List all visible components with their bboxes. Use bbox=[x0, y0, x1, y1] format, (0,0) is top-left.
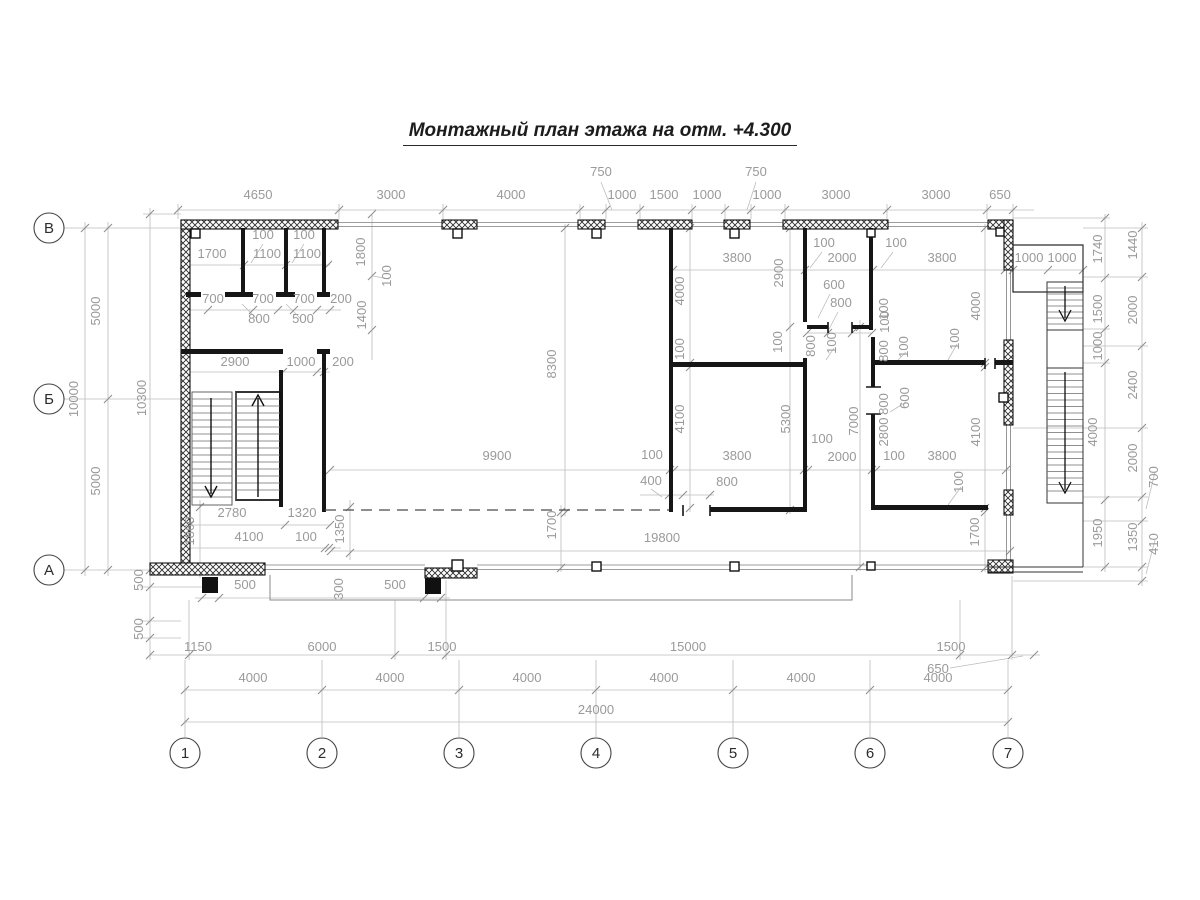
dim-label: 100 bbox=[252, 227, 274, 242]
drawing-title: Монтажный план этажа на отм. +4.300 bbox=[403, 120, 798, 146]
column-mark bbox=[730, 229, 739, 238]
dim-label: 1400 bbox=[354, 301, 369, 330]
interior-wall bbox=[995, 360, 1013, 365]
dim-label: 15000 bbox=[670, 639, 706, 654]
interior-wall bbox=[284, 228, 288, 292]
exterior-wall bbox=[150, 563, 265, 575]
dim-label: 800 bbox=[876, 340, 891, 362]
dim-label: 500 bbox=[234, 577, 256, 592]
column-mark bbox=[996, 228, 1004, 236]
dim-label: 3800 bbox=[723, 250, 752, 265]
stair-arrow-up bbox=[252, 395, 264, 497]
column-mark bbox=[592, 562, 601, 571]
axis-label: В bbox=[44, 220, 54, 237]
stair-landing bbox=[1047, 330, 1083, 368]
dim-label: 4000 bbox=[968, 292, 983, 321]
interior-wall bbox=[803, 228, 807, 322]
dim-label: 500 bbox=[131, 569, 146, 591]
column-mark bbox=[191, 229, 200, 238]
dim-label: 300 bbox=[331, 578, 346, 600]
dim-label: 5300 bbox=[778, 405, 793, 434]
axis-label: 7 bbox=[1004, 745, 1012, 762]
column-mark bbox=[999, 393, 1008, 402]
dim-label: 1700 bbox=[198, 246, 227, 261]
interior-wall bbox=[322, 354, 326, 512]
dim-label: 2000 bbox=[1125, 296, 1140, 325]
dim-label: 100 bbox=[641, 447, 663, 462]
interior-wall bbox=[241, 228, 245, 292]
dim-label: 100 bbox=[885, 235, 907, 250]
dim-label: 3000 bbox=[377, 187, 406, 202]
dim-label: 500 bbox=[292, 311, 314, 326]
dim-label: 2000 bbox=[828, 449, 857, 464]
interior-wall bbox=[322, 228, 326, 293]
dim-label: 650 bbox=[989, 187, 1011, 202]
dim-label: 4000 bbox=[1085, 418, 1100, 447]
dim-label: 1000 bbox=[693, 187, 722, 202]
interior-wall bbox=[875, 360, 985, 365]
interior-wall bbox=[873, 505, 988, 510]
dim-label: 100 bbox=[883, 448, 905, 463]
dim-label: 100 bbox=[824, 332, 839, 354]
dim-label: 100 bbox=[295, 529, 317, 544]
interior-wall bbox=[871, 337, 875, 387]
dimension-text-layer: 4650300040007501000150010007501000300030… bbox=[66, 164, 1161, 717]
dim-label: 4650 bbox=[244, 187, 273, 202]
exterior-wall bbox=[724, 220, 750, 229]
interior-wall bbox=[710, 507, 805, 512]
dim-label: 100 bbox=[672, 338, 687, 360]
dim-label: 9900 bbox=[483, 448, 512, 463]
dim-label: 4000 bbox=[672, 277, 687, 306]
dim-label: 1740 bbox=[1090, 235, 1105, 264]
dim-label: 4100 bbox=[672, 405, 687, 434]
column-filled bbox=[425, 578, 441, 594]
stair-arrow-down bbox=[1059, 286, 1071, 321]
column-mark bbox=[453, 229, 462, 238]
exterior-wall bbox=[783, 220, 888, 229]
dim-label: 4100 bbox=[968, 418, 983, 447]
exterior-wall bbox=[638, 220, 692, 229]
dim-label: 700 bbox=[202, 291, 224, 306]
exterior-wall bbox=[442, 220, 477, 229]
axis-label: 5 bbox=[729, 745, 737, 762]
dim-label: 1700 bbox=[967, 518, 982, 547]
dim-label: 2780 bbox=[218, 505, 247, 520]
interior-wall bbox=[669, 228, 673, 512]
column-mark bbox=[867, 562, 875, 570]
dim-label: 1860 bbox=[182, 517, 197, 546]
dim-label: 1320 bbox=[288, 505, 317, 520]
dim-label: 500 bbox=[384, 577, 406, 592]
dim-label: 3800 bbox=[723, 448, 752, 463]
dim-label: 6000 bbox=[308, 639, 337, 654]
dimension-lines-layer bbox=[64, 182, 1155, 737]
dim-label: 2400 bbox=[1125, 371, 1140, 400]
dim-label: 750 bbox=[590, 164, 612, 179]
dim-label: 400 bbox=[640, 473, 662, 488]
canopy-outline bbox=[270, 575, 852, 600]
dim-label: 10000 bbox=[66, 381, 81, 417]
dim-label: 1500 bbox=[428, 639, 457, 654]
dim-label: 4000 bbox=[497, 187, 526, 202]
exterior-wall bbox=[578, 220, 605, 229]
dim-label: 2000 bbox=[828, 250, 857, 265]
dim-ticks bbox=[81, 206, 1146, 726]
dim-label: 2900 bbox=[771, 259, 786, 288]
dim-label: 200 bbox=[332, 354, 354, 369]
dim-label: 4000 bbox=[924, 670, 953, 685]
column-filled bbox=[202, 577, 218, 593]
dim-label: 1000 bbox=[1015, 250, 1044, 265]
dim-label: 700 bbox=[293, 291, 315, 306]
dim-label: 1000 bbox=[753, 187, 782, 202]
dim-label: 800 bbox=[248, 311, 270, 326]
title-wrap: Монтажный план этажа на отм. +4.300 bbox=[0, 120, 1200, 146]
dim-label: 4000 bbox=[787, 670, 816, 685]
dim-label: 2800 bbox=[876, 418, 891, 447]
dim-lines bbox=[64, 182, 1155, 737]
dim-label: 1000 bbox=[287, 354, 316, 369]
dim-label: 10300 bbox=[134, 380, 149, 416]
dim-label: 1500 bbox=[937, 639, 966, 654]
dim-label: 600 bbox=[897, 387, 912, 409]
dim-label: 1500 bbox=[650, 187, 679, 202]
axis-label: 3 bbox=[455, 745, 463, 762]
interior-wall bbox=[803, 358, 807, 512]
column-mark bbox=[452, 560, 463, 571]
dim-label: 410 bbox=[1146, 533, 1161, 555]
column-mark bbox=[730, 562, 739, 571]
dim-label: 4000 bbox=[239, 670, 268, 685]
interior-wall bbox=[673, 362, 803, 367]
column-mark bbox=[592, 229, 601, 238]
dim-label: 3800 bbox=[928, 250, 957, 265]
exterior-wall bbox=[1004, 340, 1013, 425]
dim-label: 1000 bbox=[1090, 332, 1105, 361]
exterior-wall bbox=[425, 568, 477, 578]
dim-label: 5000 bbox=[88, 297, 103, 326]
dim-label: 1500 bbox=[1090, 295, 1105, 324]
column-mark bbox=[867, 229, 875, 237]
dim-label: 4000 bbox=[376, 670, 405, 685]
dim-label: 700 bbox=[252, 291, 274, 306]
dim-label: 2900 bbox=[221, 354, 250, 369]
dim-label: 800 bbox=[876, 393, 891, 415]
dim-label: 100 bbox=[811, 431, 833, 446]
interior-wall bbox=[317, 349, 330, 354]
dim-label: 19800 bbox=[644, 530, 680, 545]
dim-label: 1100 bbox=[253, 246, 281, 261]
dim-label: 800 bbox=[803, 335, 818, 357]
dim-label: 5000 bbox=[88, 467, 103, 496]
exterior-wall bbox=[1004, 220, 1013, 270]
dim-label: 100 bbox=[770, 331, 785, 353]
dim-label: 8300 bbox=[544, 350, 559, 379]
dim-label: 1350 bbox=[1125, 523, 1140, 552]
dim-label: 2000 bbox=[1125, 444, 1140, 473]
dim-label: 1350 bbox=[332, 515, 347, 544]
dim-label: 4000 bbox=[513, 670, 542, 685]
dim-label: 1000 bbox=[1048, 250, 1077, 265]
dim-label: 1440 bbox=[1125, 231, 1140, 260]
dim-label: 1000 bbox=[608, 187, 637, 202]
dim-label: 1700 bbox=[544, 511, 559, 540]
dim-label: 1950 bbox=[1090, 519, 1105, 548]
axis-label: 2 bbox=[318, 745, 326, 762]
stair-treads bbox=[192, 399, 232, 497]
dim-label: 24000 bbox=[578, 702, 614, 717]
stair-flight bbox=[192, 392, 232, 505]
dim-label: 200 bbox=[330, 291, 352, 306]
dim-label: 100 bbox=[896, 336, 911, 358]
dim-label: 100 bbox=[951, 471, 966, 493]
axis-label: 4 bbox=[592, 745, 600, 762]
dim-label: 7000 bbox=[846, 407, 861, 436]
interior-wall bbox=[276, 292, 295, 297]
dim-label: 1100 bbox=[293, 246, 321, 261]
exterior-wall bbox=[1004, 490, 1013, 515]
dim-label: 100 bbox=[876, 298, 891, 320]
axis-label: 6 bbox=[866, 745, 874, 762]
dim-label: 500 bbox=[131, 618, 146, 640]
dim-label: 100 bbox=[293, 227, 315, 242]
dim-label: 100 bbox=[813, 235, 835, 250]
interior-wall bbox=[869, 228, 873, 330]
dim-label: 1150 bbox=[184, 639, 212, 654]
interior-wall bbox=[225, 292, 253, 297]
interior-wall bbox=[807, 325, 828, 329]
dim-label: 3800 bbox=[928, 448, 957, 463]
interior-wall bbox=[186, 292, 201, 297]
dim-label: 4100 bbox=[235, 529, 264, 544]
dim-label: 3000 bbox=[822, 187, 851, 202]
dim-label: 600 bbox=[823, 277, 845, 292]
dim-label: 1800 bbox=[353, 238, 368, 267]
dim-label: 100 bbox=[379, 265, 394, 287]
dim-label: 800 bbox=[716, 474, 738, 489]
axis-label: 1 bbox=[181, 745, 189, 762]
dim-label: 3000 bbox=[922, 187, 951, 202]
dim-label: 700 bbox=[1146, 466, 1161, 488]
interior-wall bbox=[871, 414, 875, 510]
dim-label: 750 bbox=[745, 164, 767, 179]
axis-label: А bbox=[44, 562, 54, 579]
dim-label: 800 bbox=[830, 295, 852, 310]
axis-label: Б bbox=[44, 391, 54, 408]
dim-label: 4000 bbox=[650, 670, 679, 685]
dim-label: 100 bbox=[947, 328, 962, 350]
